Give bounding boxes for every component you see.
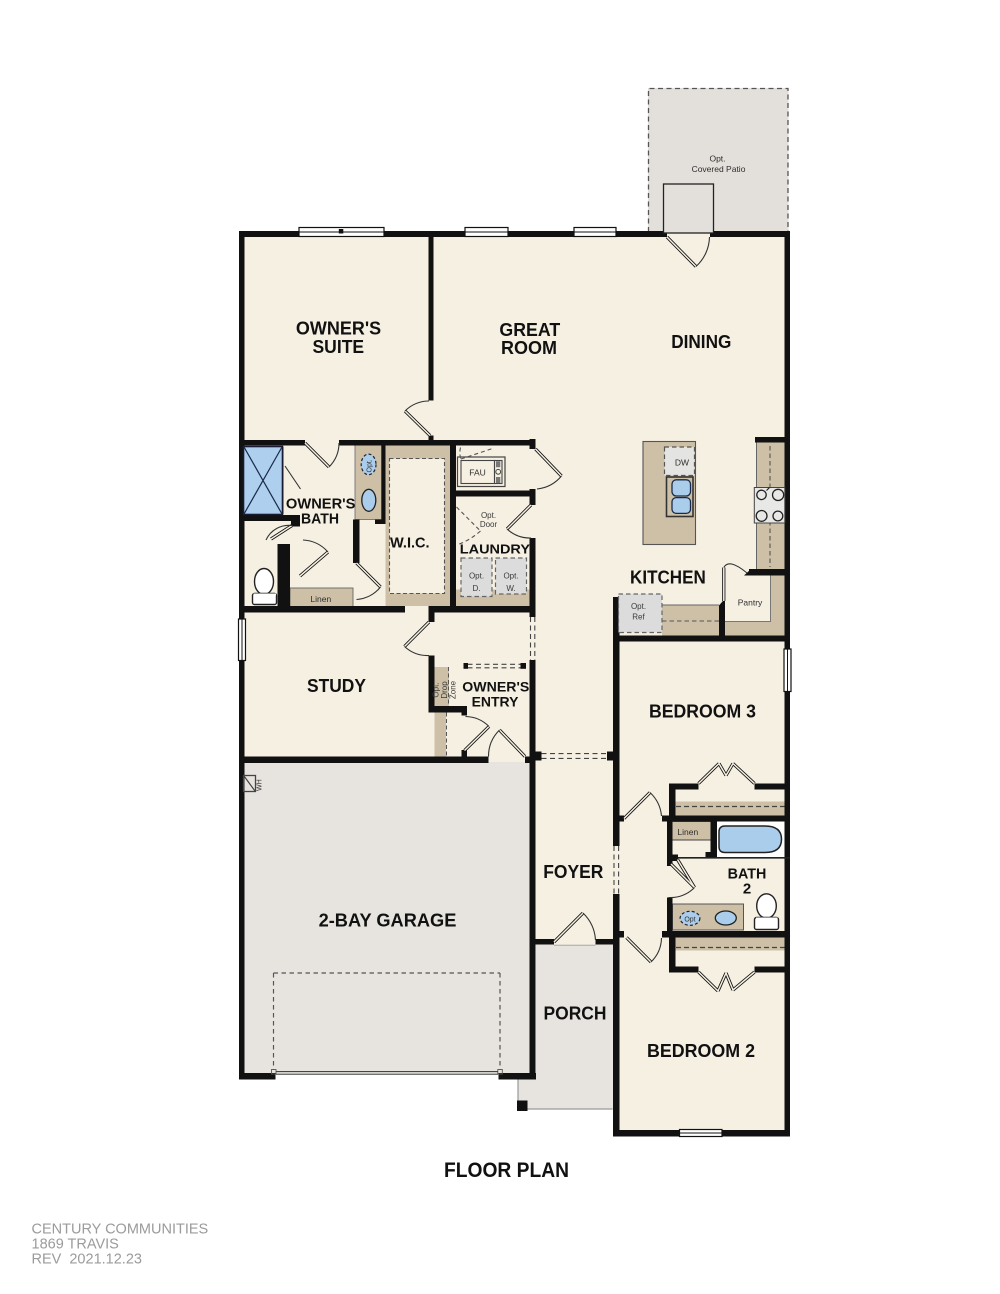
svg-text:WH: WH — [257, 779, 264, 791]
svg-text:Opt.: Opt. — [503, 572, 518, 581]
svg-text:Opt: Opt — [684, 917, 695, 924]
svg-text:REV 2021.12.23: REV 2021.12.23 — [32, 1252, 142, 1268]
svg-text:Opt.: Opt. — [631, 602, 646, 611]
svg-text:DW: DW — [675, 458, 689, 468]
svg-text:Door: Door — [480, 520, 498, 529]
svg-text:BATH: BATH — [301, 511, 339, 527]
svg-text:LAUNDRY: LAUNDRY — [460, 542, 531, 557]
svg-text:DINING: DINING — [671, 332, 731, 352]
svg-text:SUITE: SUITE — [313, 337, 365, 357]
svg-text:Linen: Linen — [310, 594, 331, 604]
svg-text:Linen: Linen — [677, 827, 698, 837]
svg-text:FLOOR PLAN: FLOOR PLAN — [444, 1158, 569, 1182]
svg-text:FOYER: FOYER — [543, 862, 603, 882]
svg-text:Pantry: Pantry — [738, 598, 763, 608]
svg-text:Opt.: Opt. — [469, 572, 484, 581]
svg-text:GREAT: GREAT — [499, 320, 560, 340]
svg-text:OWNER'S: OWNER'S — [296, 319, 381, 339]
svg-text:D.: D. — [473, 584, 481, 593]
svg-text:Opt.: Opt. — [367, 459, 374, 472]
svg-text:OWNER'S: OWNER'S — [462, 679, 529, 695]
svg-text:1869 TRAVIS: 1869 TRAVIS — [32, 1237, 119, 1253]
svg-text:ENTRY: ENTRY — [472, 694, 519, 710]
svg-text:W.I.C.: W.I.C. — [390, 535, 430, 551]
svg-text:OWNER'S: OWNER'S — [286, 497, 356, 513]
svg-text:Covered Patio: Covered Patio — [692, 164, 746, 174]
svg-text:CENTURY COMMUNITIES: CENTURY COMMUNITIES — [32, 1222, 209, 1238]
svg-text:Zone: Zone — [449, 680, 458, 699]
svg-text:W.: W. — [506, 584, 515, 593]
svg-text:BEDROOM 2: BEDROOM 2 — [647, 1041, 755, 1061]
svg-text:STUDY: STUDY — [307, 676, 366, 696]
svg-text:Opt.: Opt. — [481, 511, 496, 520]
svg-text:FAU: FAU — [469, 468, 486, 478]
svg-text:2: 2 — [743, 881, 751, 898]
svg-text:ROOM: ROOM — [501, 338, 557, 358]
svg-text:2-BAY GARAGE: 2-BAY GARAGE — [319, 911, 457, 931]
svg-text:PORCH: PORCH — [544, 1004, 607, 1024]
svg-text:Opt.: Opt. — [709, 154, 725, 164]
svg-text:Ref: Ref — [632, 613, 645, 622]
svg-text:BEDROOM 3: BEDROOM 3 — [649, 702, 756, 722]
svg-text:KITCHEN: KITCHEN — [630, 568, 706, 588]
